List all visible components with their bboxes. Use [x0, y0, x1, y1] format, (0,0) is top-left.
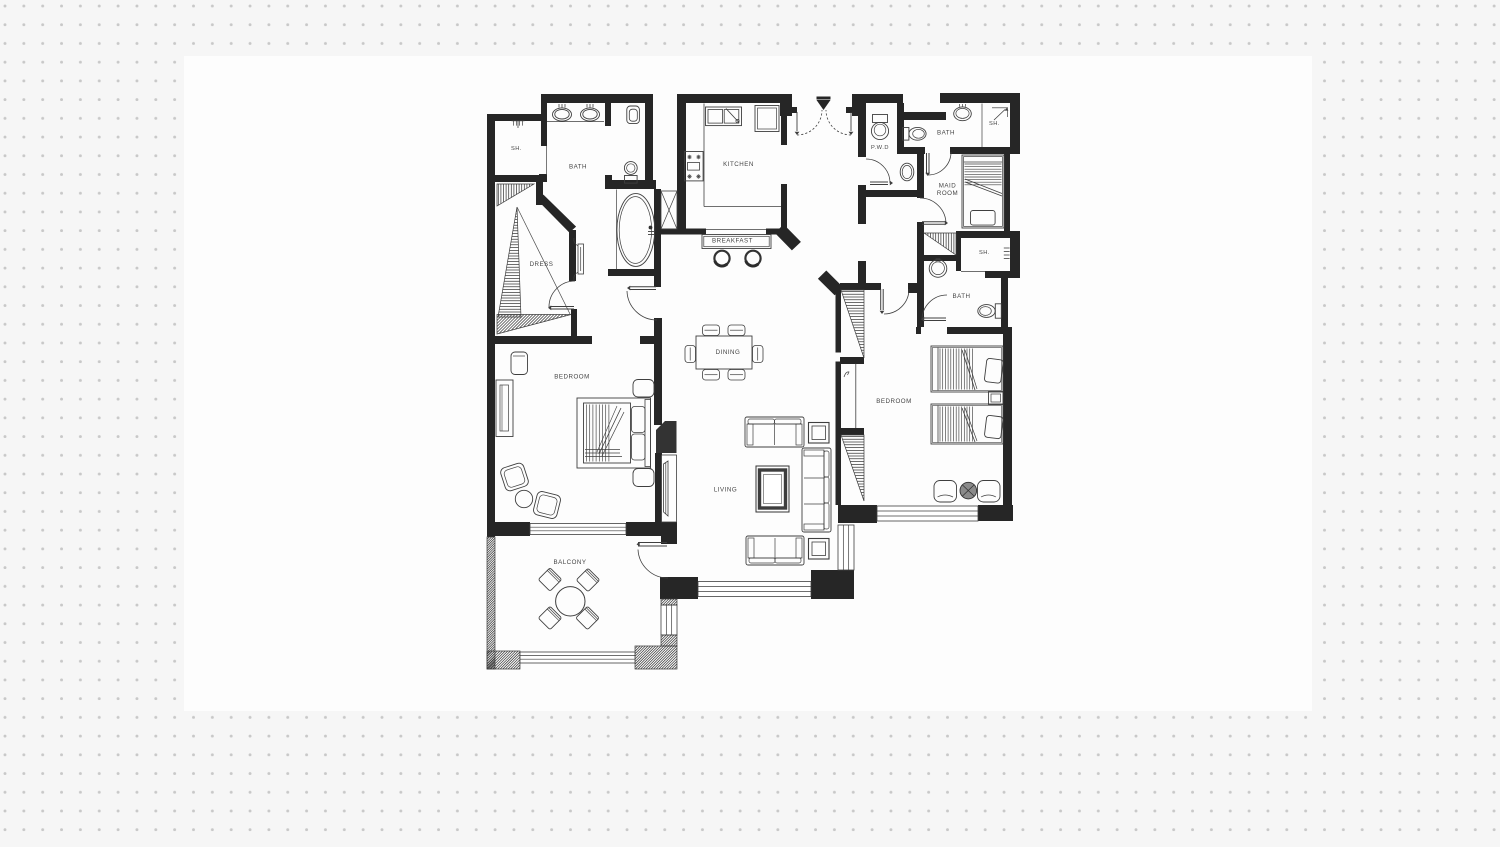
svg-text:DINING: DINING	[716, 349, 741, 356]
svg-text:BREAKFAST: BREAKFAST	[712, 237, 753, 244]
svg-text:KITCHEN: KITCHEN	[723, 161, 754, 168]
svg-text:DRESS: DRESS	[530, 261, 554, 268]
svg-text:BEDROOM: BEDROOM	[876, 398, 911, 405]
svg-text:LIVING: LIVING	[714, 486, 737, 493]
svg-text:P.W.D: P.W.D	[871, 145, 889, 151]
svg-text:BALCONY: BALCONY	[553, 559, 586, 566]
svg-text:SH.: SH.	[511, 146, 522, 152]
svg-text:BATH: BATH	[952, 293, 970, 300]
svg-text:SH.: SH.	[979, 250, 990, 256]
svg-text:SH.: SH.	[989, 121, 1000, 127]
svg-text:BATH: BATH	[569, 164, 587, 171]
svg-text:BEDROOM: BEDROOM	[554, 373, 589, 380]
svg-text:MAID: MAID	[939, 183, 957, 190]
svg-text:ROOM: ROOM	[937, 190, 958, 197]
svg-text:BATH: BATH	[937, 129, 955, 136]
